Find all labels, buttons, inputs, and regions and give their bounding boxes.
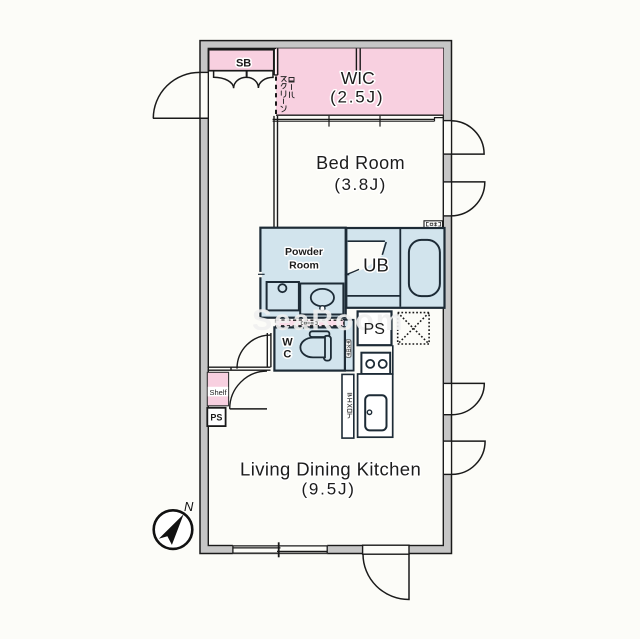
svg-text:Room: Room <box>289 260 319 272</box>
svg-text:Shelf: Shelf <box>209 388 227 397</box>
svg-text:N: N <box>184 499 194 514</box>
svg-text:(2.5J): (2.5J) <box>330 88 384 107</box>
svg-text:WIC: WIC <box>341 68 375 88</box>
svg-text:Bed Room: Bed Room <box>316 153 405 173</box>
svg-text:Powder: Powder <box>285 246 323 258</box>
svg-text:PS: PS <box>364 321 385 338</box>
svg-text:UB: UB <box>363 255 389 276</box>
svg-text:Living Dining Kitchen: Living Dining Kitchen <box>240 458 421 479</box>
svg-text:C: C <box>283 349 291 361</box>
svg-text:(9.5J): (9.5J) <box>301 480 355 499</box>
svg-text:SB: SB <box>236 58 251 70</box>
svg-text:PS: PS <box>210 412 222 422</box>
svg-text:(3.8J): (3.8J) <box>334 175 386 194</box>
svg-text:W: W <box>282 337 293 349</box>
